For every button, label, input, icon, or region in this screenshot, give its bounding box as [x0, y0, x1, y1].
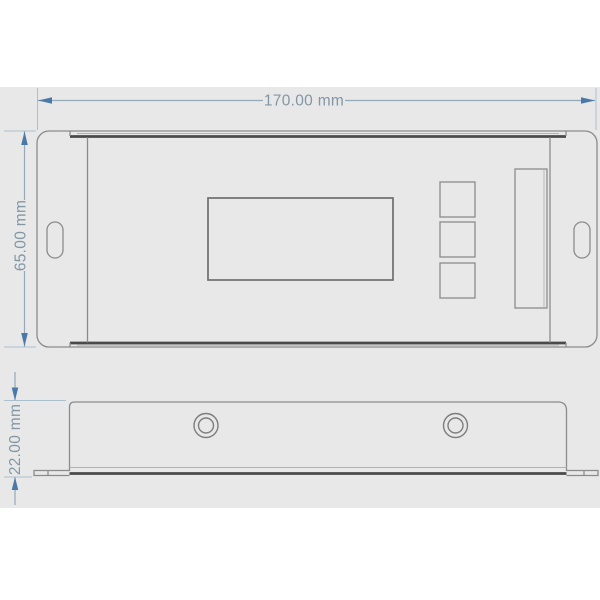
screw-right-outer-ring — [444, 414, 468, 438]
display-window — [208, 198, 393, 280]
dimension-drawing: 170.00 mm 65.00 mm 22.00 mm — [0, 0, 600, 600]
height-label: 65.00 mm — [13, 200, 30, 271]
dimension-depth: 22.00 mm — [4, 372, 66, 505]
screw-left-inner-ring — [199, 418, 214, 433]
mounting-slot-left — [47, 222, 63, 258]
width-label: 170.00 mm — [264, 93, 344, 110]
screw-right-inner-ring — [448, 418, 463, 433]
button-top — [440, 182, 475, 217]
button-bottom — [440, 263, 475, 298]
height-arrow-up-icon — [21, 132, 28, 146]
front-view — [37, 131, 597, 347]
screw-left-outer-ring — [194, 414, 218, 438]
screw-left — [194, 414, 218, 438]
dimension-width: 170.00 mm — [38, 88, 597, 130]
page: 170.00 mm 65.00 mm 22.00 mm — [0, 0, 600, 600]
terminal-block — [515, 169, 547, 308]
mounting-slot-right — [574, 222, 590, 258]
bottom-view — [34, 402, 598, 476]
dimension-height: 65.00 mm — [4, 131, 36, 347]
plate-step-notches — [70, 132, 566, 348]
height-arrow-down-icon — [21, 333, 28, 347]
width-arrow-right-icon — [581, 97, 595, 104]
screw-right — [444, 414, 468, 438]
button-middle — [440, 222, 475, 257]
depth-arrow-up-icon — [12, 477, 19, 490]
mounting-foot-right — [567, 471, 599, 476]
depth-label: 22.00 mm — [7, 404, 24, 475]
side-body-outline — [70, 402, 567, 471]
mounting-plate-outline — [37, 131, 597, 347]
mounting-foot-left — [34, 471, 70, 476]
width-arrow-left-icon — [38, 97, 52, 104]
body-side-edges — [88, 137, 551, 342]
depth-arrow-down-icon — [12, 388, 19, 401]
